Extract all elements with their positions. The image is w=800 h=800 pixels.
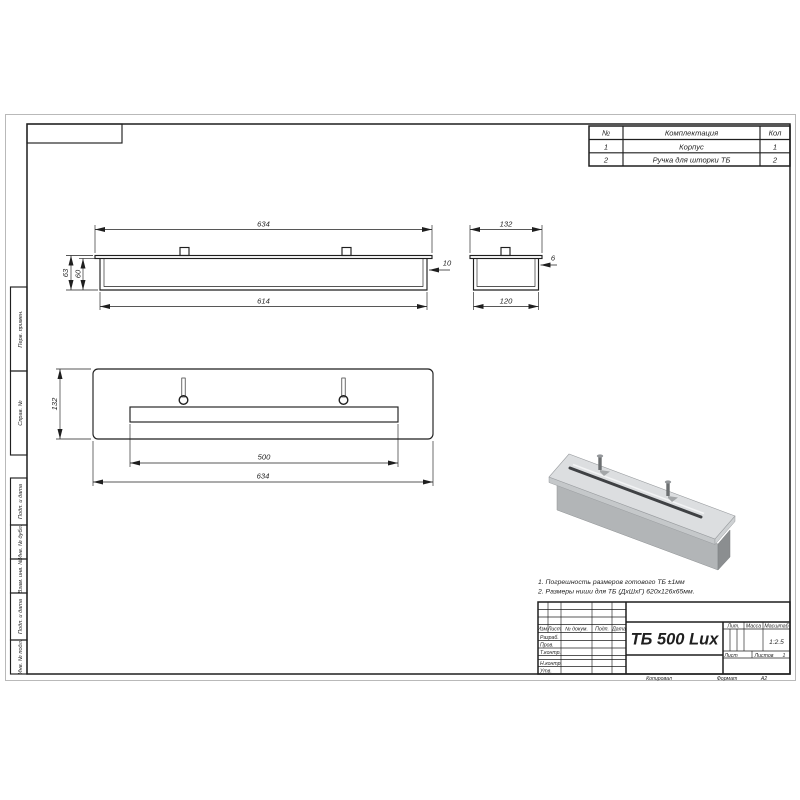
tb-listov-label: Листов [754, 653, 774, 659]
tb-lit-label: Лит. [726, 624, 739, 630]
margin-label-podp-data-2: Подп. и дата [18, 599, 24, 634]
tb-listov-value: 1 [783, 653, 786, 659]
format-label: Формат [717, 676, 738, 682]
tb-scale-value: 1:2.5 [769, 639, 784, 646]
dim-front-614: 614 [257, 297, 270, 306]
tb-row-t-contr: Т.контр. [540, 650, 561, 656]
dim-top-634: 634 [257, 472, 270, 481]
dim-front-10: 10 [443, 259, 452, 268]
margin-label-inv-podl: Инв. № подл. [18, 640, 24, 675]
format-value: А2 [760, 676, 767, 682]
parts-table-header-name: Комплектация [665, 129, 718, 138]
parts-row2-name: Ручка для шторки ТБ [653, 156, 731, 165]
tb-list-label: Лист [723, 653, 738, 659]
parts-row2-num: 2 [603, 156, 609, 165]
margin-label-inv-dubl: Инв. № дубл. [18, 525, 24, 559]
margin-label-perv-primen: Перв. примен. [18, 310, 24, 347]
dim-front-634: 634 [257, 220, 270, 229]
parts-row2-qty: 2 [772, 156, 778, 165]
sheet-outline [6, 115, 796, 681]
note-line-2: 2. Размеры ниши для ТБ (ДхШхГ) 620х126х6… [537, 588, 695, 596]
copied-label: Копировал [646, 676, 672, 682]
tb-col-list: Лист [547, 627, 562, 633]
parts-table-header-qty: Кол [769, 129, 783, 138]
tb-massa-label: Масса [746, 624, 761, 630]
parts-row1-qty: 1 [773, 142, 777, 151]
parts-row1-num: 1 [604, 142, 608, 151]
dim-top-132: 132 [50, 397, 59, 410]
tb-row-n-contr: Н.контр. [540, 661, 562, 667]
margin-label-vzam-inv: Взам. инв. № [18, 559, 24, 594]
dim-side-120: 120 [500, 297, 513, 306]
dim-side-132: 132 [500, 220, 513, 229]
tb-row-razrab: Разраб. [540, 635, 559, 641]
tb-row-prov: Пров. [540, 642, 554, 648]
engineering-drawing: Перв. примен. Справ. № Подп. и дата Инв.… [0, 0, 800, 800]
dim-top-500: 500 [258, 453, 271, 462]
parts-row1-name: Корпус [679, 142, 704, 151]
dim-front-63: 63 [61, 268, 70, 277]
tb-col-data: Дата [611, 627, 626, 633]
dim-front-60: 60 [74, 269, 83, 278]
note-line-1: 1. Погрешность размеров готового ТБ ±1мм [538, 579, 685, 586]
tb-row-utv: Утв. [540, 668, 552, 674]
tb-col-no-doc: № докум. [565, 627, 588, 633]
parts-table-header-num: № [602, 129, 610, 138]
document-title: ТБ 500 Lux [631, 631, 720, 649]
drawing-sheet: Перв. примен. Справ. № Подп. и дата Инв.… [0, 0, 800, 800]
margin-label-sprav-no: Справ. № [18, 400, 24, 425]
tb-masshtab-label: Масштаб [764, 624, 789, 630]
margin-label-podp-data-1: Подп. и дата [18, 484, 24, 519]
tb-col-podp: Подп. [595, 627, 609, 633]
